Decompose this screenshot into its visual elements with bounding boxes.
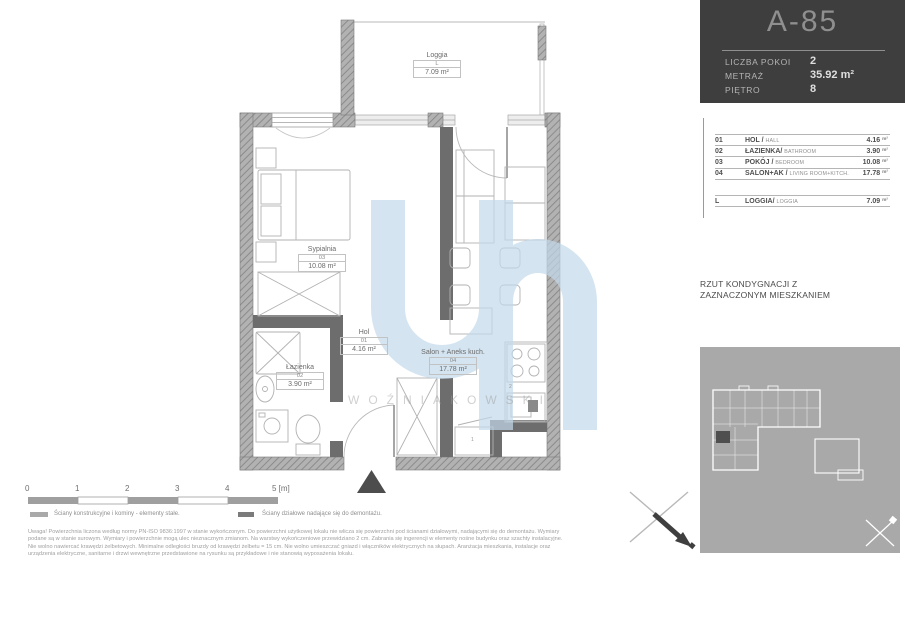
- legend-swatch-partition: [238, 512, 254, 517]
- bathroom-furniture: [256, 332, 320, 455]
- row-number: L: [715, 198, 719, 205]
- header-row-floor: PIĘTRO 8: [700, 83, 905, 97]
- row-name: ŁAZIENKA/ BATHROOM: [745, 148, 816, 155]
- room-name-en: BEDROOM: [775, 160, 804, 166]
- chair: [450, 248, 470, 268]
- disclaimer-line: urządzenia elektryczne, sanitarne i drzw…: [28, 551, 618, 558]
- stove-mark: 2: [509, 384, 512, 390]
- disclaimer-line: Nie wolno nawiercać krawędzi żelbetowych…: [28, 544, 618, 551]
- chair: [500, 285, 520, 305]
- floor-label: PIĘTRO: [725, 85, 760, 95]
- disclaimer-line: podane są w stanie surowym. Wymiary i po…: [28, 536, 618, 543]
- wardrobe: [258, 272, 340, 316]
- area-value: 35.92 m²: [810, 69, 854, 81]
- sofa: [456, 150, 494, 243]
- row-name: HOL / HALL: [745, 137, 780, 144]
- scale-tick-label: 1: [75, 484, 79, 493]
- scale-bar: [28, 497, 278, 504]
- row-area: 10.08 m²: [863, 159, 888, 166]
- scale-tick-label: 0: [25, 484, 29, 493]
- room-label-hall: Hol 01 4.16 m²: [330, 329, 398, 356]
- chair: [500, 248, 520, 268]
- table-row: 04 SALON+AK / LIVING ROOM+KITCH. 17.78 m…: [715, 169, 890, 180]
- row-area: 17.78 m²: [863, 170, 888, 177]
- header-row-area: METRAŻ 35.92 m²: [700, 69, 905, 83]
- partition-walls: [253, 127, 547, 457]
- compass-icon: [630, 492, 696, 549]
- room-label-living: Salon + Aneks kuch. 04 17.78 m²: [405, 349, 501, 376]
- room-name-en: HALL: [766, 138, 780, 144]
- disclaimer: Uwaga! Powierzchnia liczona według normy…: [28, 529, 618, 559]
- room-label-bedroom: Sypialnia 03 10.08 m²: [288, 246, 356, 273]
- floor-note-line2: ZAZNACZONYM MIESZKANIEM: [700, 290, 900, 301]
- room-label-loggia: Loggia L 7.09 m²: [403, 52, 471, 79]
- scale-tick-label: 3: [175, 484, 179, 493]
- washing-machine: [256, 410, 288, 442]
- room-label-bathroom: Łazienka 02 3.90 m²: [266, 364, 334, 391]
- legend-label: Ściany działowe nadające się do demontaż…: [262, 511, 382, 517]
- nightstand: [256, 242, 276, 262]
- sideboard: [505, 167, 545, 240]
- nightstand: [256, 148, 276, 168]
- row-number: 01: [715, 137, 723, 144]
- cabinet-mark: 1: [471, 437, 474, 443]
- room-name: Loggia: [403, 52, 471, 59]
- table-row-loggia: L LOGGIA/ LOGGIA 7.09 m²: [715, 196, 890, 207]
- room-name: Salon + Aneks kuch.: [405, 349, 501, 356]
- row-area: 4.16 m²: [867, 137, 888, 144]
- room-name: Hol: [330, 329, 398, 336]
- area-label: METRAŻ: [725, 71, 764, 81]
- room-name-pl: SALON+AK /: [745, 170, 788, 177]
- header-divider: [722, 50, 885, 51]
- low-cabinet: [455, 417, 493, 455]
- room-area: 10.08 m²: [299, 261, 345, 271]
- row-name: LOGGIA/ LOGGIA: [745, 198, 798, 205]
- header-row-rooms: LICZBA POKOI 2: [700, 55, 905, 69]
- room-name-en: LIVING ROOM+KITCH.: [790, 171, 849, 177]
- scale-tick-label: 2: [125, 484, 129, 493]
- floor-value: 8: [810, 83, 816, 95]
- living-furniture: [450, 150, 547, 455]
- row-name: POKÓJ / BEDROOM: [745, 159, 804, 166]
- rooms-value: 2: [810, 55, 816, 67]
- floorplan-page: A-85 LICZBA POKOI 2 METRAŻ 35.92 m² PIĘT…: [0, 0, 905, 640]
- floor-note: RZUT KONDYGNACJI Z ZAZNACZONYM MIESZKANI…: [700, 279, 900, 300]
- unit-header-card: A-85 LICZBA POKOI 2 METRAŻ 35.92 m² PIĘT…: [700, 0, 905, 103]
- room-area: 4.16 m²: [341, 344, 387, 354]
- stove: [507, 344, 545, 382]
- table-row: 01 HOL / HALL 4.16 m²: [715, 135, 890, 146]
- pillow: [261, 174, 281, 204]
- bed: [258, 170, 350, 240]
- storey-panel: [700, 347, 900, 553]
- room-area: 7.09 m²: [414, 67, 460, 77]
- table-row: 03 POKÓJ / BEDROOM 10.08 m²: [715, 157, 890, 168]
- unit-id: A-85: [700, 5, 905, 39]
- legend-swatch-structural: [30, 512, 48, 517]
- hall-wardrobe: [397, 378, 437, 455]
- room-name: Sypialnia: [288, 246, 356, 253]
- scale-tick-label: 5 [m]: [272, 484, 290, 493]
- legend-structural: Ściany konstrukcyjne i kominy - elementy…: [30, 511, 250, 518]
- toilet: [296, 415, 320, 455]
- table-row: 02 ŁAZIENKA/ BATHROOM 3.90 m²: [715, 146, 890, 157]
- room-name-en: BATHROOM: [784, 149, 816, 155]
- room-name-pl: ŁAZIENKA/: [745, 148, 782, 155]
- watermark-text: WOŹNIAKOWSKI: [348, 393, 552, 407]
- bedroom-window: [272, 113, 333, 138]
- room-name-en: LOGGIA: [777, 199, 799, 205]
- row-number: 04: [715, 170, 723, 177]
- floor-note-line1: RZUT KONDYGNACJI Z: [700, 279, 900, 290]
- row-name: SALON+AK / LIVING ROOM+KITCH.: [745, 170, 849, 177]
- row-number: 03: [715, 159, 723, 166]
- scale-tick-label: 4: [225, 484, 229, 493]
- room-name-pl: POKÓJ /: [745, 159, 773, 166]
- room-name: Łazienka: [266, 364, 334, 371]
- window-band: [355, 115, 545, 125]
- disclaimer-line: Uwaga! Powierzchnia liczona według normy…: [28, 529, 618, 536]
- room-area: 3.90 m²: [277, 379, 323, 389]
- room-name-pl: HOL /: [745, 137, 764, 144]
- room-name-pl: LOGGIA/: [745, 198, 775, 205]
- chair: [450, 285, 470, 305]
- rooms-label: LICZBA POKOI: [725, 57, 791, 67]
- legend-partition: Ściany działowe nadające się do demontaż…: [238, 511, 458, 518]
- door-swings: [344, 127, 507, 457]
- row-area: 3.90 m²: [867, 148, 888, 155]
- bedroom-furniture: [256, 148, 350, 316]
- table-left-rule: [703, 118, 704, 218]
- kitchen: [505, 342, 547, 422]
- pillow: [261, 206, 281, 236]
- dining-set: [450, 248, 520, 334]
- dining-table: [450, 308, 492, 334]
- row-number: 02: [715, 148, 723, 155]
- legend-label: Ściany konstrukcyjne i kominy - elementy…: [54, 511, 180, 517]
- room-area: 17.78 m²: [430, 364, 476, 374]
- entrance-arrow-icon: [357, 470, 386, 493]
- row-area: 7.09 m²: [867, 198, 888, 205]
